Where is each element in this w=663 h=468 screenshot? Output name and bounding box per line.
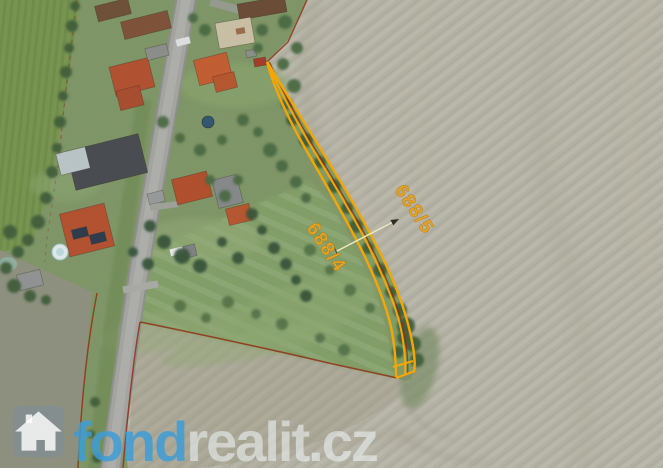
aerial-photo: 688/5 688/4	[0, 0, 663, 468]
photo-grain	[0, 0, 663, 468]
aerial-map: 688/5 688/4 fondrealit.cz	[0, 0, 663, 468]
